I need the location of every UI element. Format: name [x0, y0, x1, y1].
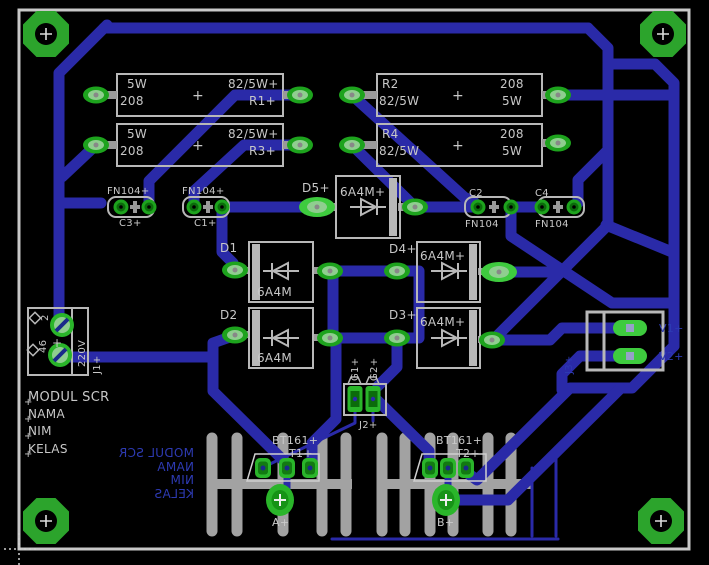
through-hole-pad[interactable]: [545, 87, 571, 104]
silk-title[interactable]: MODUL SCR: [28, 390, 109, 405]
r1-ref[interactable]: R1+: [249, 94, 276, 108]
r4-value[interactable]: 82/5W: [379, 144, 419, 158]
j2-pad[interactable]: [348, 386, 363, 412]
j3-pin-v2[interactable]: V2+: [659, 350, 684, 363]
r4-pair-value-l1[interactable]: 208: [500, 127, 524, 141]
c4-ref[interactable]: C4: [535, 188, 549, 199]
d1-ref[interactable]: D1: [220, 241, 237, 255]
bottom-kelas-mirrored[interactable]: KELAS: [154, 487, 194, 501]
j1-pin-diamond-icon: [29, 312, 40, 323]
diode-cathode-band: [469, 310, 477, 366]
r3-pair-value-l2[interactable]: 208: [120, 144, 144, 158]
diode-cathode-band: [469, 244, 477, 300]
silk-kelas[interactable]: KELAS: [28, 442, 68, 456]
d3-ref[interactable]: D3+: [389, 308, 417, 322]
through-hole-pad[interactable]: [384, 263, 410, 280]
capacitor-pad[interactable]: [142, 200, 157, 215]
capacitor-body-cross: [553, 201, 563, 213]
j3-pad[interactable]: [613, 348, 647, 364]
through-hole-pad[interactable]: [83, 87, 109, 104]
d2-ref[interactable]: D2: [220, 308, 237, 322]
copper-trace[interactable]: [588, 28, 608, 225]
through-hole-pad[interactable]: [222, 327, 248, 344]
j2-pin-g1[interactable]: G1+: [350, 358, 361, 381]
j1-pin-diamond-icon: [27, 344, 38, 355]
r2-pair-value-l1[interactable]: 208: [500, 77, 524, 91]
t1-ref[interactable]: T1+: [288, 447, 313, 460]
c2-ref[interactable]: C2: [469, 188, 483, 199]
c3-value[interactable]: FN104+: [107, 186, 150, 197]
r3-pair-value-l1[interactable]: 5W: [127, 127, 147, 141]
silk-kelas-cross[interactable]: +: [24, 449, 33, 460]
mounting-hole[interactable]: [23, 498, 69, 544]
bottom-title-mirrored[interactable]: MODUL SCR: [119, 446, 194, 460]
r2-ref[interactable]: R2: [382, 77, 399, 91]
d2-value[interactable]: 6A4M: [257, 351, 292, 365]
silk-title-cross[interactable]: +: [24, 397, 33, 408]
r1-origin-cross[interactable]: +: [192, 88, 204, 104]
t2-value[interactable]: BT161+: [436, 434, 482, 447]
heatsink-layer: [207, 438, 533, 531]
through-hole-pad[interactable]: [222, 262, 248, 279]
via-pad[interactable]: [299, 197, 335, 217]
bottom-nama-mirrored[interactable]: NAMA: [157, 460, 194, 474]
d4-value[interactable]: 6A4M+: [420, 249, 465, 263]
capacitor-pad[interactable]: [471, 200, 486, 215]
through-hole-pad[interactable]: [287, 87, 313, 104]
through-hole-pad[interactable]: [402, 199, 428, 216]
through-hole-pad[interactable]: [317, 330, 343, 347]
r4-origin-cross[interactable]: +: [452, 138, 464, 154]
capacitor-pad[interactable]: [504, 200, 519, 215]
c3-ref[interactable]: C3+: [119, 218, 142, 229]
r3-origin-cross[interactable]: +: [192, 138, 204, 154]
capacitor-pad[interactable]: [114, 200, 129, 215]
r1-pair-value-l2[interactable]: 208: [120, 94, 144, 108]
capacitor-pad[interactable]: [215, 200, 230, 215]
through-hole-pad[interactable]: [339, 137, 365, 154]
j1-pin-2[interactable]: 2: [40, 314, 51, 321]
through-hole-pad[interactable]: [384, 330, 410, 347]
d3-value[interactable]: 6A4M+: [420, 315, 465, 329]
pcb-board: 5W208+82/5W+R1+5W208+82/5W+R3+R282/5W+20…: [0, 0, 709, 565]
through-hole-pad[interactable]: [317, 263, 343, 280]
c4-value[interactable]: FN104: [535, 219, 569, 230]
power-tab-pad[interactable]: [432, 484, 460, 516]
thyristor-pad[interactable]: [302, 458, 318, 478]
mounting-hole[interactable]: [638, 498, 684, 544]
capacitor-pad[interactable]: [187, 200, 202, 215]
r2-value[interactable]: 82/5W: [379, 94, 419, 108]
diode-cathode-band: [389, 178, 397, 236]
bottom-nim-mirrored[interactable]: NIM: [170, 473, 194, 487]
j3-pin-v1[interactable]: V1+: [659, 322, 684, 335]
j1-origin-cross[interactable]: +: [52, 336, 62, 350]
r1-value[interactable]: 82/5W+: [228, 77, 279, 91]
j2-pin-g2[interactable]: G2+: [369, 358, 380, 381]
c2-value[interactable]: FN104: [465, 219, 499, 230]
r3-ref[interactable]: R3+: [249, 144, 276, 158]
r2-origin-cross[interactable]: +: [452, 88, 464, 104]
pad-a-label[interactable]: A+: [272, 516, 289, 529]
pcb-canvas: 5W208+82/5W+R1+5W208+82/5W+R3+R282/5W+20…: [0, 0, 709, 565]
r4-pair-value-l2[interactable]: 5W: [502, 144, 522, 158]
j2-ref[interactable]: J2+: [358, 420, 378, 431]
pad-b-label[interactable]: B+: [437, 516, 454, 529]
d4-ref[interactable]: D4+: [389, 242, 417, 256]
r2-pair-value-l2[interactable]: 5W: [502, 94, 522, 108]
thyristor-pad[interactable]: [422, 458, 438, 478]
copper-trace[interactable]: [378, 343, 397, 386]
capacitor-body-cross: [203, 201, 213, 213]
d1-value[interactable]: 6A4M: [257, 285, 292, 299]
capacitor-pad[interactable]: [535, 200, 550, 215]
capacitor-body-cross: [130, 201, 140, 213]
silk-nim-cross[interactable]: +: [24, 431, 33, 442]
d5-ref[interactable]: D5+: [302, 181, 330, 195]
silk-nama[interactable]: NAMA: [28, 407, 65, 421]
through-hole-pad[interactable]: [339, 87, 365, 104]
j2-pad[interactable]: [366, 386, 381, 412]
silk-nama-cross[interactable]: +: [24, 414, 33, 425]
thyristor-pad[interactable]: [440, 458, 456, 478]
through-hole-pad[interactable]: [83, 137, 109, 154]
through-hole-pad[interactable]: [287, 137, 313, 154]
d5-value[interactable]: 6A4M+: [340, 185, 385, 199]
j1-pin-1[interactable]: 46: [38, 340, 49, 353]
t1-value[interactable]: BT161+: [272, 434, 318, 447]
r3-value[interactable]: 82/5W+: [228, 127, 279, 141]
copper-trace[interactable]: [606, 225, 672, 252]
c1-value[interactable]: FN104+: [182, 186, 225, 197]
j3-pad[interactable]: [613, 320, 647, 336]
thyristor-pad[interactable]: [458, 458, 474, 478]
via-pad[interactable]: [481, 262, 517, 282]
j1-ref[interactable]: J1+: [92, 355, 103, 375]
mounting-hole[interactable]: [640, 11, 686, 57]
c1-ref[interactable]: C1+: [194, 218, 217, 229]
thyristor-pad[interactable]: [279, 458, 295, 478]
t2-ref[interactable]: T2+: [455, 447, 480, 460]
r4-ref[interactable]: R4: [382, 127, 399, 141]
screw-terminal-pad[interactable]: [50, 313, 74, 337]
mounting-hole[interactable]: [23, 11, 69, 57]
capacitor-pad[interactable]: [567, 200, 582, 215]
r1-pair-value-l1[interactable]: 5W: [127, 77, 147, 91]
through-hole-pad[interactable]: [479, 332, 505, 349]
j3-ref[interactable]: J3+: [564, 355, 575, 375]
thyristor-pad[interactable]: [255, 458, 271, 478]
copper-trace-layer: [59, 25, 674, 539]
j1-value[interactable]: 220V: [77, 340, 88, 367]
power-tab-pad[interactable]: [266, 484, 294, 516]
capacitor-body-cross: [489, 201, 499, 213]
through-hole-pad[interactable]: [545, 135, 571, 152]
